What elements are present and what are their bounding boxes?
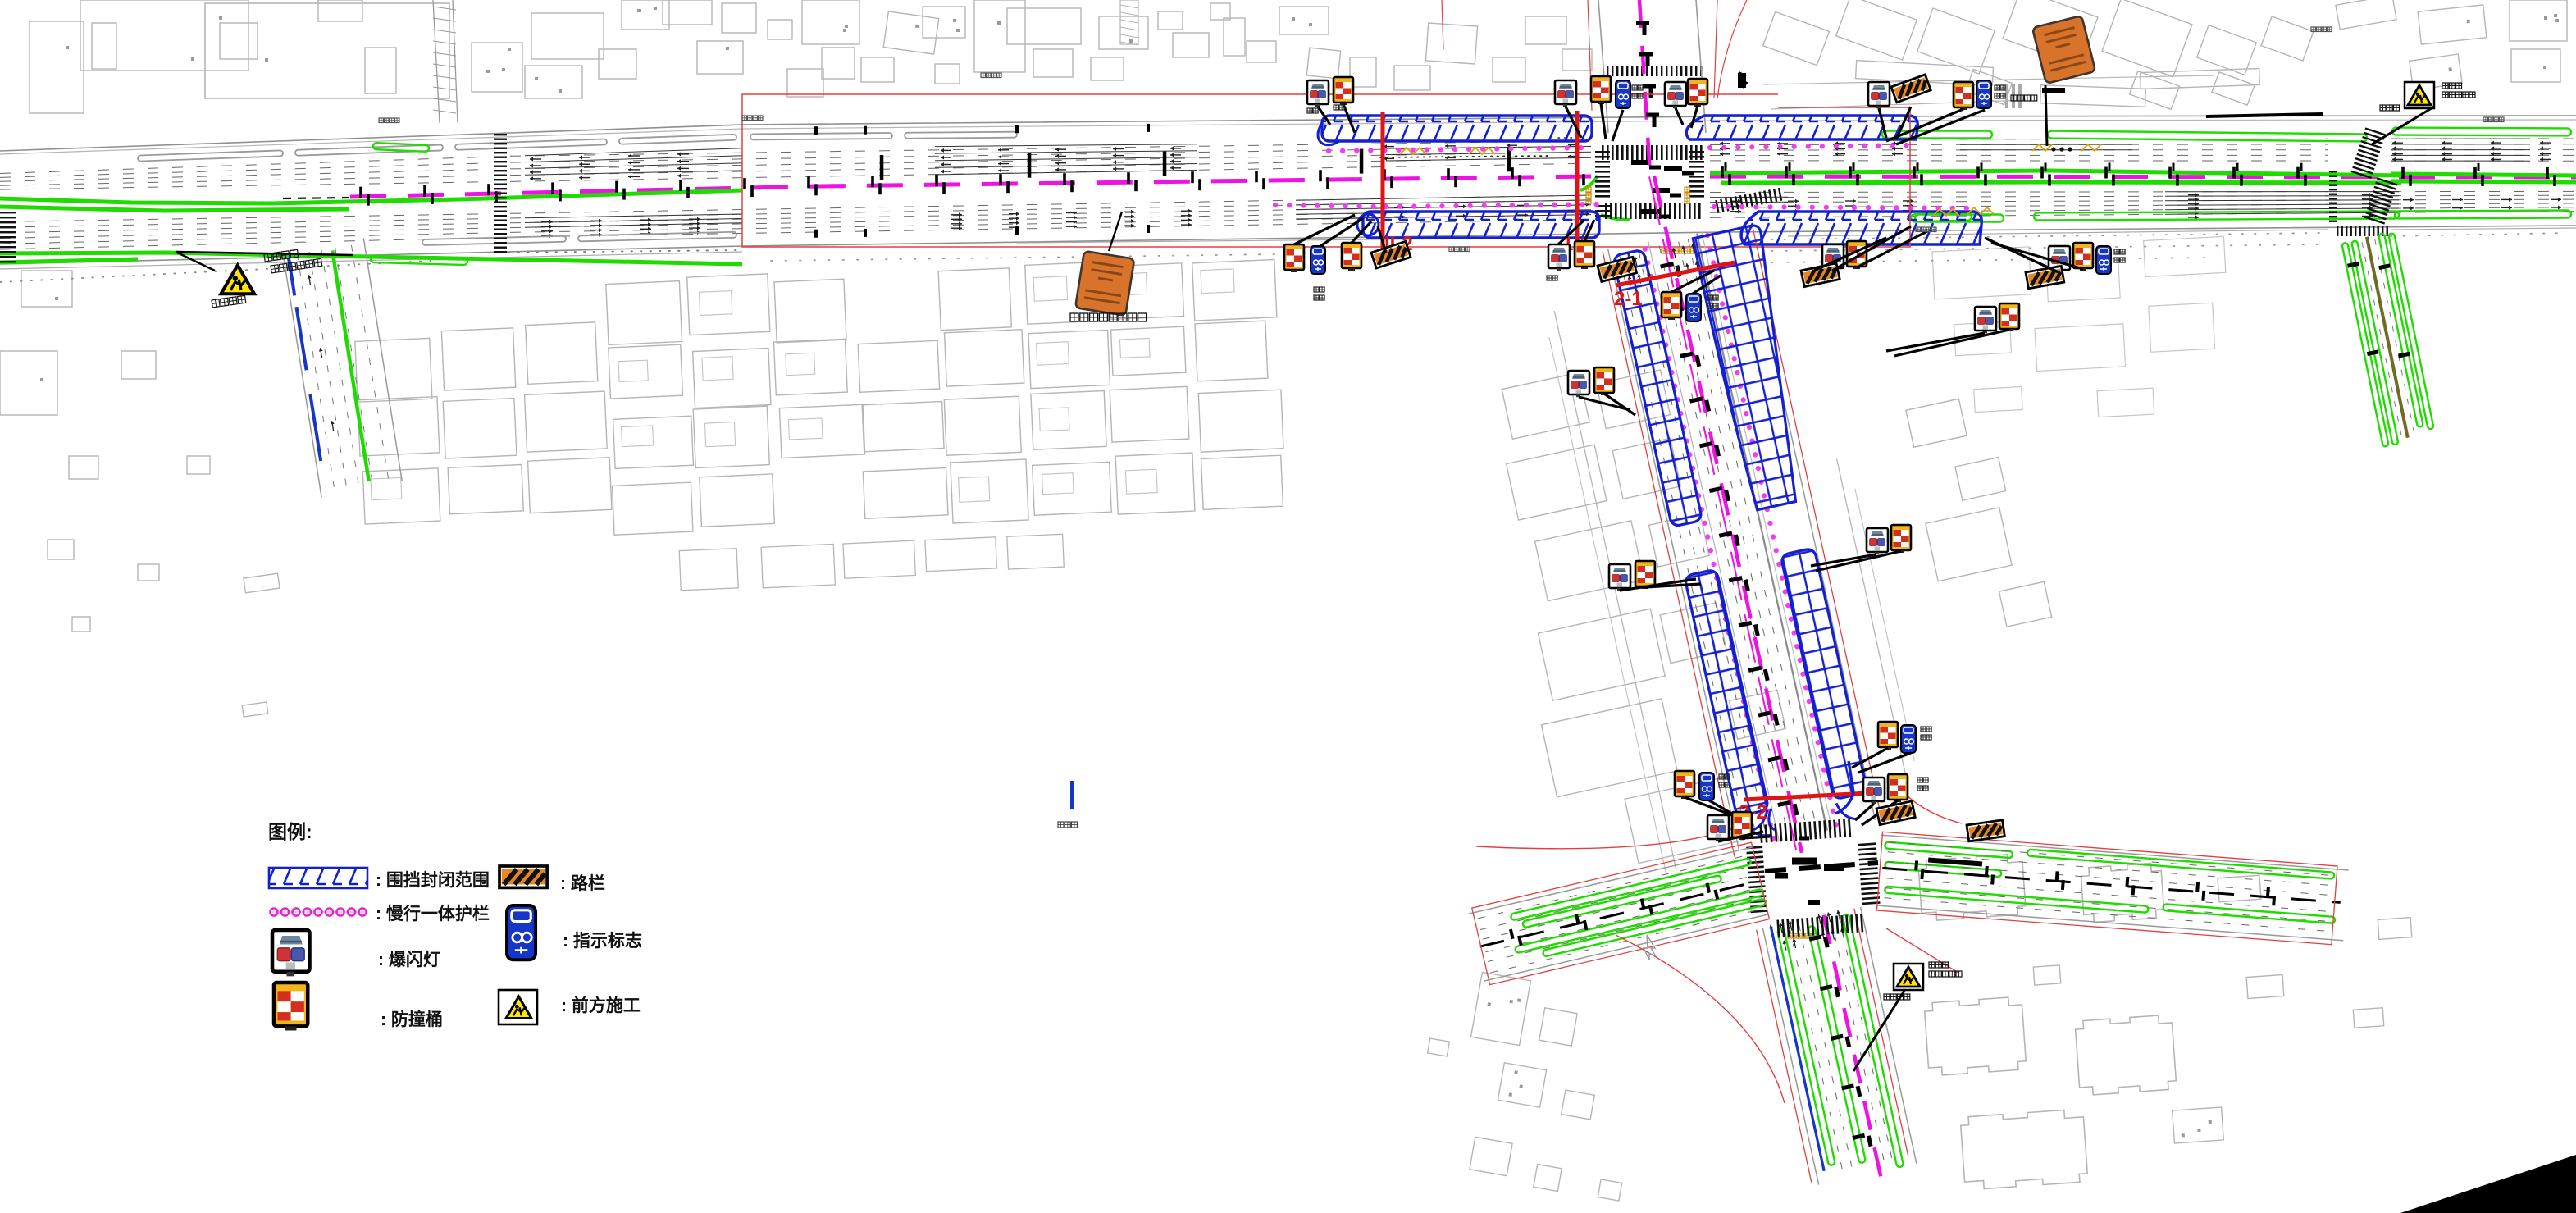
svg-text:: 前方施工: : 前方施工 [561, 996, 641, 1015]
svg-text:: 防撞桶: : 防撞桶 [381, 1010, 443, 1029]
svg-text:: 路栏: : 路栏 [560, 873, 605, 893]
svg-text:图例:: 图例: [268, 821, 312, 842]
svg-text:: 围挡封闭范围: : 围挡封闭范围 [376, 870, 490, 890]
svg-text:: 指示标志: : 指示标志 [563, 931, 642, 951]
svg-text:: 慢行一体护栏: : 慢行一体护栏 [376, 904, 490, 923]
svg-text:2-1: 2-1 [1614, 288, 1643, 310]
svg-text:: 爆闪灯: : 爆闪灯 [378, 951, 440, 969]
